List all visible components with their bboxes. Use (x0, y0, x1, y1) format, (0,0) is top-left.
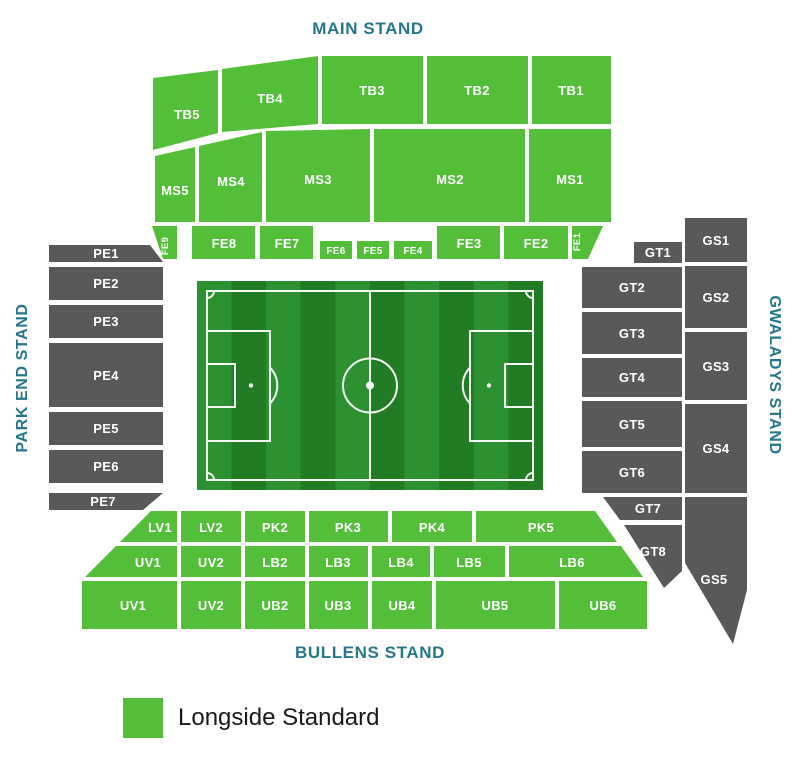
right-penalty-spot (487, 383, 491, 387)
section-lb2[interactable] (245, 546, 305, 577)
section-ms4[interactable] (199, 132, 262, 222)
legend-longside-label: Longside Standard (178, 704, 380, 732)
section-pe5 (49, 412, 163, 445)
section-gs2 (685, 266, 747, 328)
section-gt3 (582, 312, 682, 354)
section-fe3[interactable] (437, 226, 500, 259)
bullens-stand-label: BULLENS STAND (295, 643, 445, 662)
section-pe2 (49, 267, 163, 300)
section-pk4[interactable] (392, 511, 472, 542)
section-uv1-upper[interactable] (85, 546, 177, 577)
section-gs4 (685, 404, 747, 493)
section-fe8[interactable] (192, 226, 255, 259)
section-pk2[interactable] (245, 511, 305, 542)
section-gt8 (624, 525, 682, 588)
section-tb3[interactable] (322, 56, 423, 124)
pitch (197, 281, 543, 490)
seat-map-canvas: MAIN STAND BULLENS STAND PARK END STAND … (0, 0, 798, 690)
section-gt6 (582, 451, 682, 493)
section-gt7 (603, 497, 682, 520)
section-ub3[interactable] (309, 581, 368, 629)
section-ub5[interactable] (436, 581, 555, 629)
section-uv1-lower[interactable] (82, 581, 177, 629)
section-fe1[interactable] (572, 226, 603, 259)
section-pk5[interactable] (476, 511, 617, 542)
legend-longside-swatch (123, 698, 163, 738)
section-gt5 (582, 401, 682, 447)
section-ms3[interactable] (266, 129, 370, 222)
section-fe6[interactable] (320, 241, 352, 259)
section-pe1 (49, 245, 163, 262)
centre-spot (366, 382, 374, 390)
section-fe7[interactable] (260, 226, 313, 259)
section-lb6[interactable] (509, 546, 643, 577)
section-uv2-upper[interactable] (181, 546, 241, 577)
section-pe4 (49, 343, 163, 407)
section-fe4[interactable] (394, 241, 432, 259)
section-pe6 (49, 450, 163, 483)
section-uv2-lower[interactable] (181, 581, 241, 629)
section-ms2[interactable] (374, 129, 525, 222)
section-tb5[interactable] (153, 70, 218, 150)
section-lb3[interactable] (309, 546, 368, 577)
left-penalty-spot (249, 383, 253, 387)
section-ub6[interactable] (559, 581, 647, 629)
park-end-stand-label: PARK END STAND (14, 303, 31, 452)
section-lv1[interactable] (120, 511, 177, 542)
section-ms5[interactable] (155, 147, 195, 222)
section-gs5 (685, 497, 747, 644)
section-tb2[interactable] (427, 56, 528, 124)
section-pe7 (49, 493, 163, 510)
section-lb5[interactable] (434, 546, 505, 577)
section-pe3 (49, 305, 163, 338)
stadium-seat-map: MAIN STAND BULLENS STAND PARK END STAND … (0, 0, 798, 766)
legend: Longside Standard (123, 698, 380, 738)
section-tb4[interactable] (222, 56, 318, 132)
section-lb4[interactable] (372, 546, 430, 577)
section-gs3 (685, 332, 747, 400)
section-gt4 (582, 358, 682, 397)
section-gt1 (634, 242, 682, 263)
section-lv2[interactable] (181, 511, 241, 542)
section-pk3[interactable] (309, 511, 388, 542)
section-ub2[interactable] (245, 581, 305, 629)
section-gt2 (582, 267, 682, 308)
section-fe2[interactable] (504, 226, 568, 259)
gwaladys-stand-label: GWALADYS STAND (766, 295, 783, 454)
main-stand-label: MAIN STAND (312, 19, 423, 38)
section-ub4[interactable] (372, 581, 432, 629)
section-tb1[interactable] (532, 56, 611, 124)
section-fe5[interactable] (357, 241, 389, 259)
section-gs1 (685, 218, 747, 262)
section-ms1[interactable] (529, 129, 611, 222)
